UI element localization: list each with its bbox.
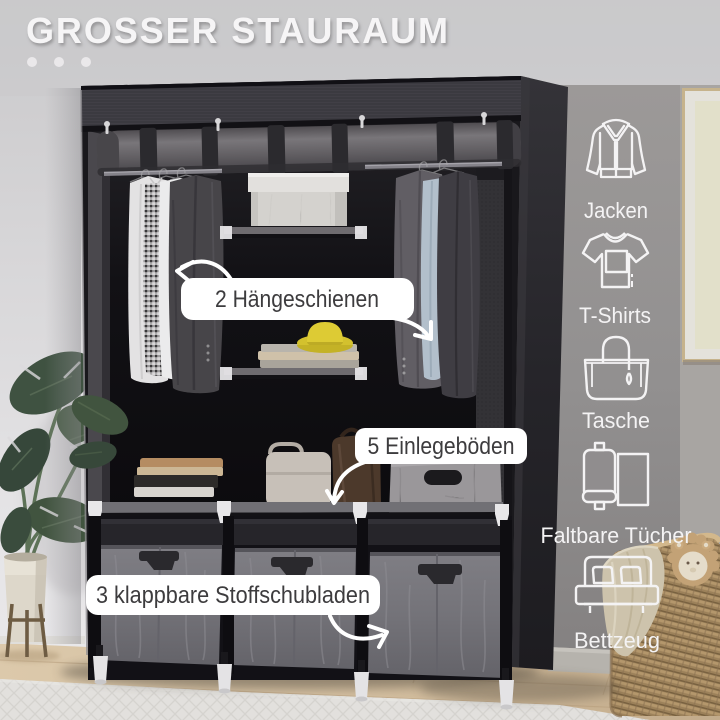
svg-text:3 klappbare Stoffschubladen: 3 klappbare Stoffschubladen — [96, 582, 370, 609]
svg-text:2 Hängeschienen: 2 Hängeschienen — [215, 286, 379, 313]
svg-text:Faltbare Tücher: Faltbare Tücher — [541, 523, 692, 548]
svg-text:GROSSER STAURAUM: GROSSER STAURAUM — [26, 10, 448, 51]
svg-text:T-Shirts: T-Shirts — [579, 303, 651, 328]
svg-text:5 Einlegeböden: 5 Einlegeböden — [368, 433, 515, 460]
svg-text:Tasche: Tasche — [582, 408, 650, 433]
svg-text:Jacken: Jacken — [584, 198, 648, 223]
svg-text:Bettzeug: Bettzeug — [574, 628, 660, 653]
